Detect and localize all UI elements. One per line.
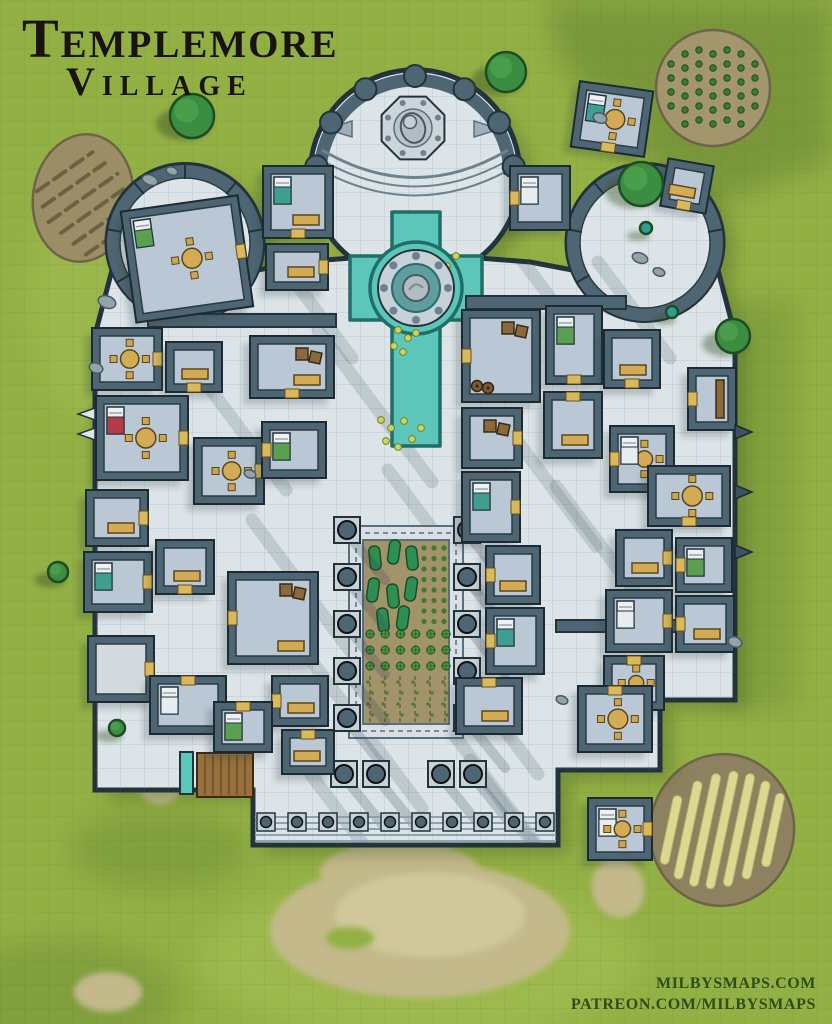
door <box>643 822 652 836</box>
door <box>187 383 201 392</box>
table <box>288 267 314 277</box>
chair <box>159 435 166 442</box>
lily-pad <box>453 253 460 260</box>
step-column-base <box>540 817 551 828</box>
door <box>676 558 685 572</box>
chair <box>613 99 621 107</box>
chair <box>689 476 696 483</box>
door <box>627 656 641 665</box>
chair <box>604 826 611 833</box>
table <box>482 711 508 721</box>
building-room <box>609 530 672 593</box>
door <box>462 349 471 363</box>
garden-sprout <box>441 566 446 571</box>
table <box>288 703 314 713</box>
bed-blanket <box>473 493 490 510</box>
table <box>294 375 320 385</box>
lily-pad <box>413 330 420 337</box>
building-room <box>537 392 602 465</box>
bed-blanket <box>107 417 124 434</box>
round-table <box>223 462 241 480</box>
bed-blanket <box>225 723 242 740</box>
building-room <box>149 540 214 601</box>
building-room <box>599 590 672 659</box>
map-attribution: MILBYSMAPS.COM PATREON.COM/MILBYSMAPS <box>571 974 816 1016</box>
bed-blanket <box>273 443 290 460</box>
room-floor <box>96 644 146 694</box>
building-room <box>597 330 660 395</box>
chair <box>641 440 648 447</box>
apse-column <box>320 112 342 134</box>
chair <box>190 271 198 279</box>
door <box>179 431 188 445</box>
column <box>338 662 356 680</box>
chair <box>614 699 621 706</box>
door <box>236 702 250 711</box>
step-column-base <box>292 817 303 828</box>
door <box>482 678 496 687</box>
column <box>335 765 353 783</box>
garden-sprout <box>441 587 446 592</box>
bed-blanket <box>687 559 704 576</box>
garden-sprout <box>441 545 446 550</box>
chair <box>598 716 605 723</box>
column <box>338 568 356 586</box>
round-table <box>121 350 139 368</box>
door <box>513 431 522 445</box>
table <box>562 435 588 445</box>
building-room <box>207 702 272 759</box>
chair <box>126 339 133 346</box>
building-room <box>641 466 730 533</box>
building-room <box>89 396 188 487</box>
table <box>293 215 319 225</box>
table <box>620 365 646 375</box>
column <box>338 709 356 727</box>
chair <box>706 493 713 500</box>
table <box>278 641 304 651</box>
step-column-base <box>447 817 458 828</box>
lily-pad <box>391 343 398 350</box>
lily-pad <box>378 417 385 424</box>
garden-sprout <box>431 587 436 592</box>
door <box>625 379 639 388</box>
garden-sprout <box>441 619 446 624</box>
door <box>688 392 697 406</box>
building-room <box>265 676 328 733</box>
apse-statue <box>382 97 445 160</box>
bed-blanket <box>557 327 574 344</box>
building-room <box>77 552 152 619</box>
lily-pad <box>395 444 402 451</box>
bed-blanket <box>621 447 638 464</box>
building-room <box>259 244 328 297</box>
garden-sprout <box>441 598 446 603</box>
apse-column <box>404 65 426 87</box>
door <box>319 260 328 274</box>
building-room <box>479 608 544 681</box>
lily-pad <box>388 425 395 432</box>
round-table <box>682 486 702 506</box>
garden-sprout <box>431 598 436 603</box>
door <box>272 694 281 708</box>
chair <box>619 841 626 848</box>
attribution-patreon: PATREON.COM/MILBYSMAPS <box>571 995 816 1016</box>
chair <box>631 716 638 723</box>
bed-blanket <box>161 697 178 714</box>
garden-sprout <box>431 608 436 613</box>
crate <box>502 322 514 334</box>
building-room <box>581 798 652 867</box>
door <box>139 511 148 525</box>
building-room <box>563 80 653 164</box>
crate <box>293 587 306 600</box>
column <box>458 615 476 633</box>
garden-sprout <box>431 556 436 561</box>
chair <box>186 238 194 246</box>
garden-bush <box>386 583 399 608</box>
fountain-statue <box>403 275 429 301</box>
round-table <box>614 821 630 837</box>
chair <box>228 484 235 491</box>
building-room <box>256 166 333 245</box>
garden-sprout <box>421 608 426 613</box>
building-room <box>255 422 326 485</box>
door <box>486 634 495 648</box>
lily-pad <box>409 436 416 443</box>
step-column-base <box>416 817 427 828</box>
door <box>181 676 195 685</box>
round-table <box>608 709 628 729</box>
apse-column <box>488 112 510 134</box>
chair <box>228 451 235 458</box>
chair <box>142 356 149 363</box>
chair <box>205 252 213 260</box>
lily-pad <box>418 425 425 432</box>
shelf <box>716 380 724 418</box>
garden-sprout <box>441 608 446 613</box>
village-map <box>0 0 832 1024</box>
building-room <box>114 195 254 330</box>
building-room <box>79 490 148 553</box>
chair <box>634 826 641 833</box>
field-crops <box>656 30 770 146</box>
crate <box>309 351 322 364</box>
round-table <box>136 428 156 448</box>
garden-sprout <box>421 545 426 550</box>
table <box>632 563 658 573</box>
step-column-base <box>385 817 396 828</box>
door <box>566 392 580 401</box>
chair <box>125 435 132 442</box>
door <box>291 229 305 238</box>
chair <box>672 493 679 500</box>
door <box>511 500 520 514</box>
garden-sprout <box>431 577 436 582</box>
table <box>694 629 720 639</box>
table <box>182 369 208 379</box>
lily-pad <box>383 438 390 445</box>
column <box>458 568 476 586</box>
garden-sprout <box>431 619 436 624</box>
chair <box>609 132 617 140</box>
water-trough <box>180 752 193 794</box>
garden-sprout <box>431 545 436 550</box>
garden-sprout <box>441 556 446 561</box>
garden-sprout <box>421 587 426 592</box>
chair <box>614 732 621 739</box>
building-room <box>455 472 520 549</box>
step-column-base <box>261 817 272 828</box>
lily-pad <box>405 335 412 342</box>
chair <box>628 118 636 126</box>
garden-sprout <box>421 598 426 603</box>
building-room <box>159 342 222 399</box>
column <box>338 521 356 539</box>
garden-sprout <box>421 619 426 624</box>
building-room <box>669 596 734 659</box>
chair <box>689 510 696 517</box>
door <box>682 517 696 526</box>
crate <box>515 325 528 338</box>
crate <box>296 348 308 360</box>
door <box>676 617 685 631</box>
column <box>464 765 482 783</box>
chair <box>142 452 149 459</box>
chair <box>633 665 640 672</box>
garden-sprout <box>441 577 446 582</box>
door <box>178 585 192 594</box>
building-room <box>503 166 570 237</box>
step-column-base <box>354 817 365 828</box>
door <box>145 662 154 676</box>
apse-column <box>355 78 377 100</box>
bed-blanket <box>497 629 514 646</box>
lily-pad <box>400 349 407 356</box>
building-room <box>571 686 652 759</box>
building-room <box>479 546 540 611</box>
step-column-base <box>478 817 489 828</box>
garden-sprout <box>421 577 426 582</box>
crate <box>280 584 292 596</box>
village-map-page: Templemore Village MILBYSMAPS.COM PATREO… <box>0 0 832 1024</box>
garden-sprout <box>421 556 426 561</box>
bed-blanket <box>521 187 538 204</box>
chair <box>619 810 626 817</box>
bed-blanket <box>274 187 291 204</box>
garden-sprout <box>421 566 426 571</box>
door <box>285 389 299 398</box>
attribution-website: MILBYSMAPS.COM <box>571 974 816 995</box>
table <box>108 523 134 533</box>
chair <box>110 356 117 363</box>
door <box>301 730 315 739</box>
building-room <box>539 306 602 391</box>
bed-blanket <box>95 573 112 590</box>
garden-sprout <box>431 566 436 571</box>
building-room <box>669 538 732 599</box>
building-room <box>275 730 334 781</box>
bed-blanket <box>617 611 634 628</box>
step-column-base <box>509 817 520 828</box>
door <box>610 452 619 466</box>
chair <box>171 257 179 265</box>
chair <box>212 468 219 475</box>
chair <box>126 372 133 379</box>
garden-bush <box>405 545 418 570</box>
column <box>338 615 356 633</box>
table <box>500 581 526 591</box>
crate <box>497 423 510 436</box>
door <box>567 375 581 384</box>
building-room <box>455 310 540 409</box>
crate <box>484 420 496 432</box>
building-room <box>243 336 334 405</box>
bed-blanket <box>135 229 154 248</box>
statue-head <box>404 116 417 129</box>
door <box>228 611 237 625</box>
door <box>236 244 247 259</box>
lily-pad <box>395 327 402 334</box>
chair <box>656 456 663 463</box>
lily-pad <box>401 418 408 425</box>
door <box>676 200 691 211</box>
building-room <box>681 368 736 437</box>
door <box>608 686 622 695</box>
building-room <box>221 572 318 671</box>
door <box>510 191 519 205</box>
column <box>432 765 450 783</box>
door <box>262 443 271 457</box>
step-column-base <box>323 817 334 828</box>
building-room <box>449 678 522 741</box>
building-room <box>455 408 522 475</box>
column <box>367 765 385 783</box>
chair <box>142 418 149 425</box>
table <box>174 571 200 581</box>
table <box>294 751 320 761</box>
door <box>600 142 615 153</box>
door <box>486 568 495 582</box>
